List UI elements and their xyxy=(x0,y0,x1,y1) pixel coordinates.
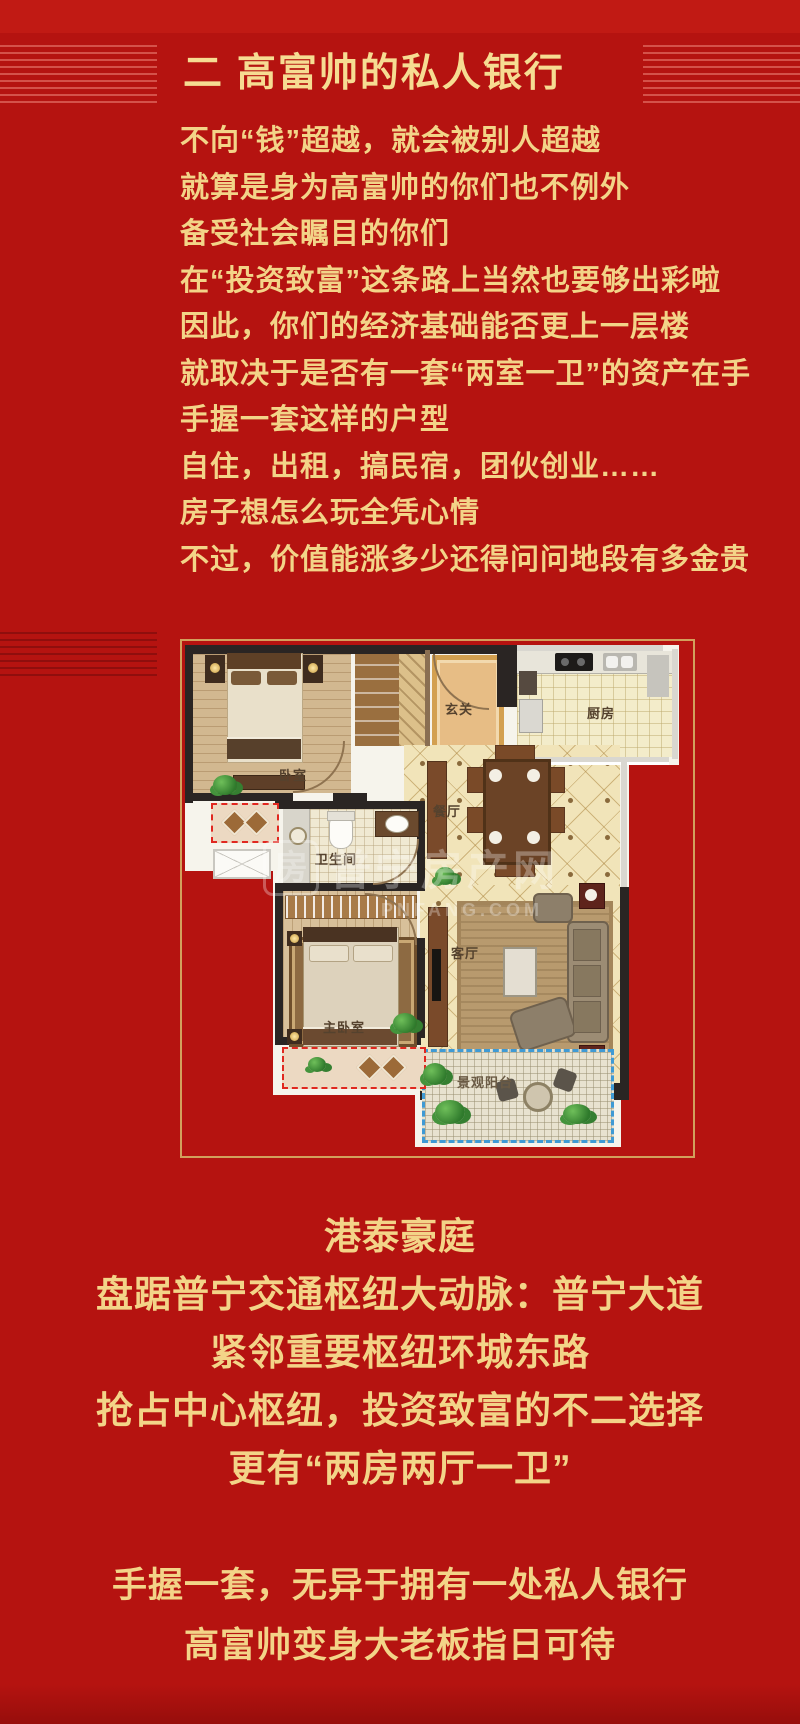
intro-line: 就算是身为高富帅的你们也不例外 xyxy=(180,165,751,212)
lamp-glow xyxy=(290,934,299,943)
top-light-band xyxy=(0,0,800,33)
stove-burner xyxy=(561,658,569,666)
closing-line: 高富帅变身大老板指日可待 xyxy=(0,1616,800,1676)
toilet-tank xyxy=(327,811,355,821)
stripe-block-top-left xyxy=(0,45,157,108)
wall-segment xyxy=(425,650,430,746)
page-title: 二 高富帅的私人银行 xyxy=(183,42,565,98)
shoe-cabinet xyxy=(399,650,425,746)
bay-pillow xyxy=(356,1054,383,1081)
closing-line: 手握一套，无异于拥有一处私人银行 xyxy=(0,1556,800,1616)
intro-line: 因此，你们的经济基础能否更上一层楼 xyxy=(180,304,751,351)
tv xyxy=(432,949,441,1001)
bed-pillow xyxy=(267,671,297,685)
plant xyxy=(213,775,237,795)
project-name: 港泰豪庭 xyxy=(0,1208,800,1266)
watermark-logo: 房 xyxy=(263,840,319,896)
balcony: 景观阳台 xyxy=(422,1049,614,1143)
plant xyxy=(393,1013,417,1033)
bedroom-label: 卧室 xyxy=(279,765,307,784)
plant xyxy=(563,1104,591,1124)
bed-headboard xyxy=(227,653,301,669)
lamp-glow xyxy=(308,663,318,673)
living-label: 客厅 xyxy=(451,943,479,962)
closet xyxy=(355,650,399,746)
floor-plan: 景观阳台 卧室 玄关 厨房 餐厅 卫生间 客厅 主卧室 房 普宁房产网 PNFA… xyxy=(183,641,681,1153)
wall-segment xyxy=(497,645,517,707)
stripe-block-mid-left xyxy=(0,632,157,678)
balcony-chair xyxy=(552,1067,578,1093)
highlight-line: 紧邻重要枢纽环城东路 xyxy=(0,1324,800,1382)
bed-pillow xyxy=(353,945,393,962)
master-bedroom-label: 主卧室 xyxy=(323,1017,365,1036)
kitchen-window-wall xyxy=(672,649,678,759)
fridge xyxy=(519,699,543,733)
bay-pillow xyxy=(243,809,270,836)
promo-poster: 二 高富帅的私人银行 不向“钱”超越，就会被别人超越 就算是身为高富帅的你们也不… xyxy=(0,0,800,1724)
wall-segment xyxy=(185,793,293,801)
site-watermark: 房 普宁房产网 PNFANG.COM xyxy=(263,837,613,921)
plate xyxy=(527,769,540,782)
wall-segment xyxy=(620,887,629,1099)
wall-segment xyxy=(333,793,367,801)
sink-basin xyxy=(621,656,633,668)
vanity-sink xyxy=(385,815,409,833)
wall-segment xyxy=(185,645,193,803)
intro-line: 自住，出租，搞民宿，团伙创业…… xyxy=(180,444,751,491)
kitchen-label: 厨房 xyxy=(587,703,615,722)
watermark-cn: 普宁房产网 xyxy=(329,837,559,898)
lamp-glow xyxy=(210,663,220,673)
balcony-label: 景观阳台 xyxy=(457,1072,513,1091)
highlight-line: 抢占中心枢纽，投资致富的不二选择 xyxy=(0,1382,800,1440)
intro-line: 不过，价值能涨多少还得问问地段有多金贵 xyxy=(180,537,751,584)
highlight-line: 盘踞普宁交通枢纽大动脉：普宁大道 xyxy=(0,1266,800,1324)
sofa-cushion xyxy=(573,929,601,961)
bed-pillow xyxy=(309,945,349,962)
highlight-copy: 港泰豪庭 盘踞普宁交通枢纽大动脉：普宁大道 紧邻重要枢纽环城东路 抢占中心枢纽，… xyxy=(0,1208,800,1498)
intro-line: 房子想怎么玩全凭心情 xyxy=(180,490,751,537)
sink-basin xyxy=(606,656,618,668)
highlight-line: 更有“两房两厅一卫” xyxy=(0,1440,800,1498)
intro-line: 手握一套这样的户型 xyxy=(180,397,751,444)
intro-line: 就取决于是否有一套“两室一卫”的资产在手 xyxy=(180,351,751,398)
plate xyxy=(489,769,502,782)
small-appliance xyxy=(519,671,537,695)
bay-pillow xyxy=(380,1054,407,1081)
balcony-table xyxy=(523,1082,553,1112)
bottom-vignette xyxy=(0,1684,800,1724)
dining-window-wall xyxy=(621,757,627,887)
wall-segment xyxy=(417,938,425,1038)
watermark-en: PNFANG.COM xyxy=(263,900,613,921)
bay-window-bottom xyxy=(282,1047,426,1089)
wall-segment xyxy=(275,801,425,809)
intro-line: 在“投资致富”这条路上当然也要够出彩啦 xyxy=(180,258,751,305)
intro-line: 不向“钱”超越，就会被别人超越 xyxy=(180,118,751,165)
intro-copy: 不向“钱”超越，就会被别人超越 就算是身为高富帅的你们也不例外 备受社会瞩目的你… xyxy=(180,118,751,583)
entry-label: 玄关 xyxy=(445,699,473,718)
bed-foot-band xyxy=(227,737,301,759)
kitchen-appliance-block xyxy=(647,655,669,697)
coffee-table xyxy=(503,947,537,997)
master-headboard xyxy=(303,927,397,942)
stove-burner xyxy=(577,658,585,666)
lamp-glow xyxy=(290,1032,299,1041)
sofa-cushion xyxy=(573,965,601,997)
stripe-block-top-right xyxy=(643,45,800,108)
plant xyxy=(435,1100,465,1124)
plant xyxy=(423,1063,447,1085)
dining-label: 餐厅 xyxy=(433,801,461,820)
bed-pillow xyxy=(231,671,261,685)
closing-copy: 手握一套，无异于拥有一处私人银行 高富帅变身大老板指日可待 xyxy=(0,1556,800,1676)
plant xyxy=(308,1057,326,1072)
intro-line: 备受社会瞩目的你们 xyxy=(180,211,751,258)
sofa-cushion xyxy=(573,1001,601,1033)
